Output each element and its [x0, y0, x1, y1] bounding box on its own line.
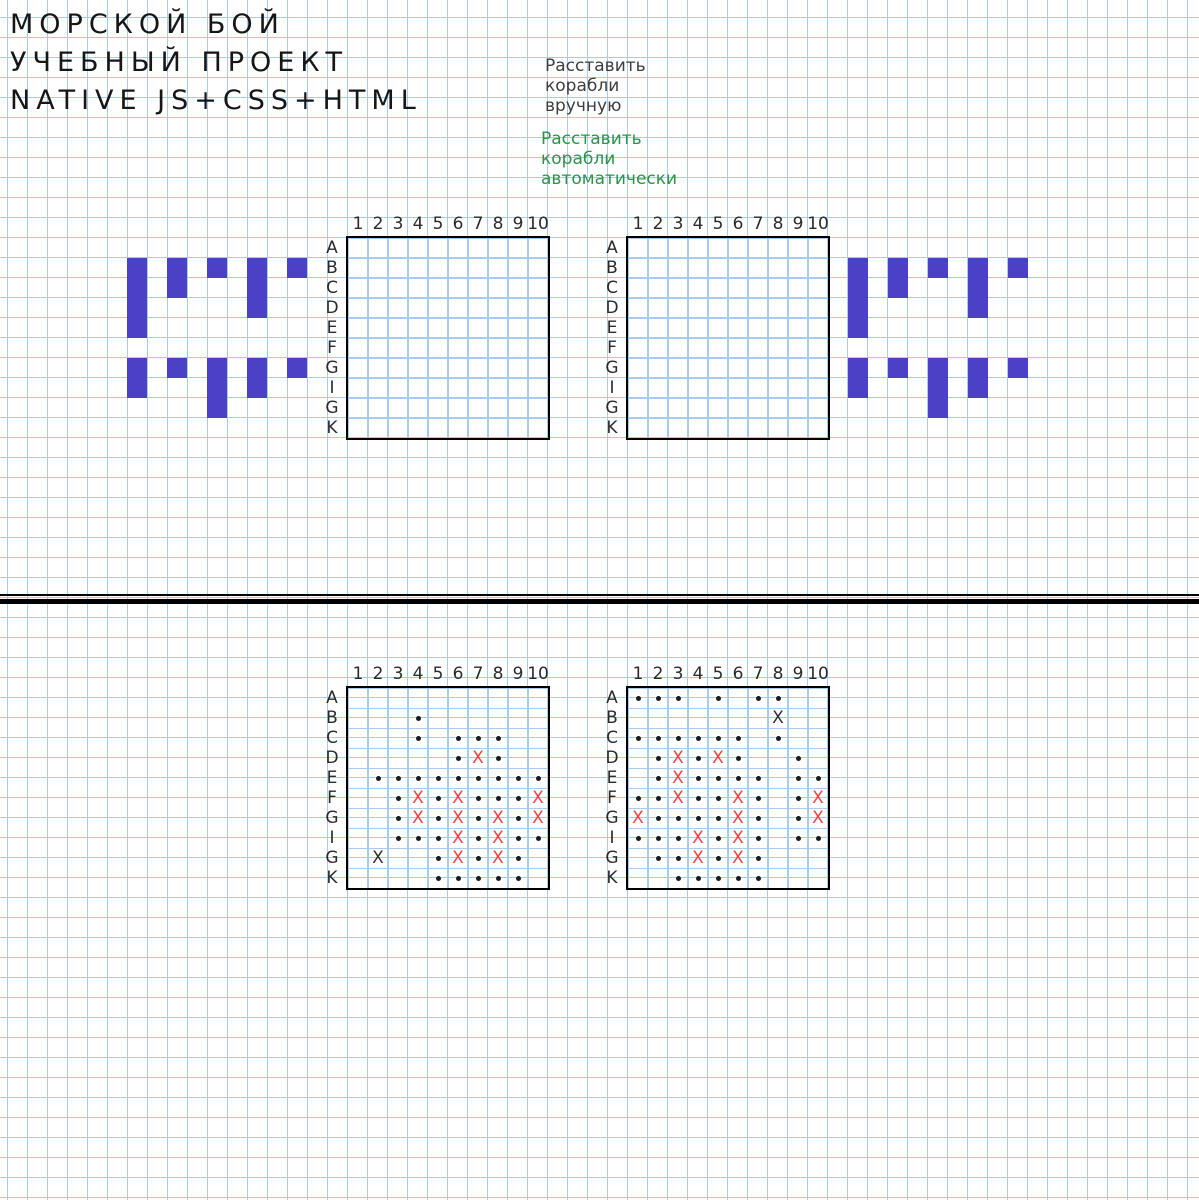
ship-2deck[interactable]: [167, 258, 187, 298]
miss-dot: [388, 808, 408, 828]
row-label: C: [602, 278, 622, 298]
column-label: 5: [708, 664, 728, 684]
miss-dot: [408, 708, 428, 728]
section-divider-bottom-line: [0, 599, 1199, 604]
hit-x-mark: X: [668, 788, 688, 808]
miss-dot: [488, 768, 508, 788]
row-label: G: [602, 808, 622, 828]
ship-2deck[interactable]: [247, 358, 267, 398]
hit-x-mark: X: [688, 848, 708, 868]
hit-x-mark: X: [488, 808, 508, 828]
miss-dot: [488, 748, 508, 768]
miss-dot: [788, 828, 808, 848]
place-ships-automatically-button[interactable]: Расставить корабли автоматически: [541, 129, 681, 189]
miss-dot: [748, 768, 768, 788]
column-label: 3: [668, 664, 688, 684]
hit-x-mark: X: [668, 748, 688, 768]
battleship-page: МОРСКОЙ БОЙ УЧЕБНЫЙ ПРОЕКТ NATIVE JS+CSS…: [0, 0, 1199, 1200]
row-label: B: [322, 708, 342, 728]
hit-x-mark: X: [448, 848, 468, 868]
miss-dot: [388, 788, 408, 808]
miss-dot: [748, 788, 768, 808]
column-label: 1: [348, 664, 368, 684]
miss-dot: [648, 788, 668, 808]
miss-dot: [748, 848, 768, 868]
miss-dot: [628, 728, 648, 748]
miss-dot: [508, 848, 528, 868]
ship-1deck[interactable]: [1008, 358, 1028, 378]
miss-dot: [808, 768, 828, 788]
column-label: 6: [448, 664, 468, 684]
miss-dot: [368, 768, 388, 788]
miss-dot: [748, 808, 768, 828]
column-label: 1: [628, 664, 648, 684]
miss-dot: [528, 828, 548, 848]
miss-dot: [668, 688, 688, 708]
miss-dot: [708, 768, 728, 788]
battle-board-right[interactable]: XXXXXXXXXXXXXX: [626, 686, 830, 890]
miss-dot: [408, 828, 428, 848]
row-label: G: [322, 358, 342, 378]
miss-dot: [668, 848, 688, 868]
hit-x-mark: X: [528, 788, 548, 808]
row-label: F: [602, 338, 622, 358]
column-label: 10: [808, 214, 828, 234]
row-label: B: [602, 258, 622, 278]
column-label: 8: [768, 664, 788, 684]
miss-dot: [788, 788, 808, 808]
hit-x-mark: X: [528, 808, 548, 828]
row-label: I: [602, 828, 622, 848]
row-label: I: [602, 378, 622, 398]
column-label: 4: [408, 664, 428, 684]
miss-dot: [768, 688, 788, 708]
miss-dot: [648, 768, 668, 788]
miss-dot: [788, 768, 808, 788]
column-label: 10: [808, 664, 828, 684]
miss-dot: [688, 728, 708, 748]
miss-dot: [668, 808, 688, 828]
ship-2deck[interactable]: [848, 358, 868, 398]
row-label: I: [322, 828, 342, 848]
miss-dot: [408, 728, 428, 748]
hit-x-mark: X: [728, 808, 748, 828]
ship-4deck[interactable]: [127, 258, 147, 338]
title-line-3: NATIVE JS+CSS+HTML: [10, 82, 422, 120]
ship-3deck[interactable]: [247, 258, 267, 318]
miss-dot: [428, 828, 448, 848]
miss-dot: [628, 688, 648, 708]
miss-dot: [668, 728, 688, 748]
miss-x-mark: X: [768, 708, 788, 728]
miss-dot: [428, 808, 448, 828]
column-label: 7: [468, 214, 488, 234]
column-label: 4: [688, 664, 708, 684]
column-label: 6: [448, 214, 468, 234]
miss-dot: [648, 808, 668, 828]
row-label: E: [602, 768, 622, 788]
column-label: 2: [368, 214, 388, 234]
ship-1deck[interactable]: [167, 358, 187, 378]
miss-dot: [788, 808, 808, 828]
hit-x-mark: X: [488, 848, 508, 868]
column-label: 3: [668, 214, 688, 234]
row-label: F: [322, 788, 342, 808]
miss-dot: [688, 768, 708, 788]
column-label: 1: [628, 214, 648, 234]
miss-dot: [708, 828, 728, 848]
row-label: A: [322, 238, 342, 258]
row-label: I: [322, 378, 342, 398]
miss-dot: [508, 828, 528, 848]
miss-dot: [688, 868, 708, 888]
row-label: D: [322, 748, 342, 768]
miss-dot: [388, 828, 408, 848]
row-label: F: [602, 788, 622, 808]
row-label: A: [602, 688, 622, 708]
miss-dot: [708, 788, 728, 808]
hit-x-mark: X: [408, 788, 428, 808]
column-label: 9: [788, 214, 808, 234]
miss-dot: [708, 728, 728, 748]
setup-board-left[interactable]: [346, 236, 550, 440]
column-label: 6: [728, 214, 748, 234]
hit-x-mark: X: [728, 788, 748, 808]
column-label: 8: [488, 664, 508, 684]
miss-dot: [428, 768, 448, 788]
page-title: МОРСКОЙ БОЙ УЧЕБНЫЙ ПРОЕКТ NATIVE JS+CSS…: [10, 6, 422, 120]
miss-dot: [448, 768, 468, 788]
row-label: K: [322, 418, 342, 438]
ship-3deck[interactable]: [928, 358, 948, 418]
row-label: B: [322, 258, 342, 278]
column-label: 5: [428, 214, 448, 234]
miss-dot: [708, 868, 728, 888]
hit-x-mark: X: [688, 828, 708, 848]
battle-board-left[interactable]: XXXXXXXXXXXXX: [346, 686, 550, 890]
miss-dot: [428, 848, 448, 868]
column-label: 2: [648, 664, 668, 684]
column-label: 2: [648, 214, 668, 234]
miss-dot: [648, 848, 668, 868]
column-label: 7: [468, 664, 488, 684]
column-label: 3: [388, 664, 408, 684]
miss-dot: [728, 768, 748, 788]
column-label: 6: [728, 664, 748, 684]
column-label: 4: [688, 214, 708, 234]
miss-dot: [468, 848, 488, 868]
column-label: 10: [528, 664, 548, 684]
miss-dot: [448, 748, 468, 768]
column-label: 9: [788, 664, 808, 684]
miss-dot: [708, 688, 728, 708]
hit-x-mark: X: [808, 808, 828, 828]
miss-dot: [748, 828, 768, 848]
miss-dot: [688, 808, 708, 828]
place-ships-manually-button[interactable]: Расставить корабли вручную: [545, 56, 665, 116]
column-label: 8: [768, 214, 788, 234]
miss-dot: [508, 808, 528, 828]
column-label: 5: [428, 664, 448, 684]
row-label: G: [322, 808, 342, 828]
ship-1deck[interactable]: [1008, 258, 1028, 278]
ship-1deck[interactable]: [928, 258, 948, 278]
row-label: D: [322, 298, 342, 318]
miss-dot: [708, 808, 728, 828]
miss-dot: [428, 868, 448, 888]
hit-x-mark: X: [448, 808, 468, 828]
miss-dot: [808, 828, 828, 848]
column-label: 8: [488, 214, 508, 234]
hit-x-mark: X: [468, 748, 488, 768]
section-divider-top-line: [0, 594, 1199, 596]
title-line-1: МОРСКОЙ БОЙ: [10, 6, 422, 44]
miss-dot: [468, 828, 488, 848]
hit-x-mark: X: [488, 828, 508, 848]
row-label: K: [602, 868, 622, 888]
column-label: 3: [388, 214, 408, 234]
miss-dot: [748, 868, 768, 888]
column-label: 4: [408, 214, 428, 234]
row-label: K: [602, 418, 622, 438]
miss-dot: [728, 728, 748, 748]
miss-dot: [508, 788, 528, 808]
ship-1deck[interactable]: [207, 258, 227, 278]
ship-2deck[interactable]: [127, 358, 147, 398]
miss-dot: [648, 688, 668, 708]
hit-x-mark: X: [708, 748, 728, 768]
column-label: 5: [708, 214, 728, 234]
row-label: G: [322, 398, 342, 418]
miss-dot: [488, 728, 508, 748]
miss-dot: [428, 788, 448, 808]
miss-dot: [448, 868, 468, 888]
miss-dot: [448, 728, 468, 748]
row-label: E: [322, 318, 342, 338]
miss-dot: [488, 788, 508, 808]
miss-dot: [488, 868, 508, 888]
ship-4deck[interactable]: [848, 258, 868, 338]
miss-dot: [408, 768, 428, 788]
row-label: C: [322, 278, 342, 298]
miss-dot: [768, 728, 788, 748]
miss-dot: [648, 748, 668, 768]
row-label: G: [602, 358, 622, 378]
row-label: K: [322, 868, 342, 888]
hit-x-mark: X: [408, 808, 428, 828]
column-label: 1: [348, 214, 368, 234]
column-label: 7: [748, 664, 768, 684]
column-label: 2: [368, 664, 388, 684]
hit-x-mark: X: [808, 788, 828, 808]
row-label: F: [322, 338, 342, 358]
miss-dot: [508, 768, 528, 788]
ship-3deck[interactable]: [207, 358, 227, 418]
miss-dot: [628, 788, 648, 808]
miss-dot: [748, 688, 768, 708]
title-line-2: УЧЕБНЫЙ ПРОЕКТ: [10, 44, 422, 82]
miss-dot: [788, 748, 808, 768]
miss-dot: [628, 828, 648, 848]
row-label: D: [602, 298, 622, 318]
row-label: C: [322, 728, 342, 748]
miss-dot: [468, 808, 488, 828]
miss-dot: [708, 848, 728, 868]
column-label: 9: [508, 214, 528, 234]
miss-dot: [728, 748, 748, 768]
row-label: E: [602, 318, 622, 338]
hit-x-mark: X: [728, 848, 748, 868]
ship-1deck[interactable]: [888, 358, 908, 378]
miss-dot: [468, 728, 488, 748]
hit-x-mark: X: [448, 788, 468, 808]
miss-dot: [508, 868, 528, 888]
row-label: G: [322, 848, 342, 868]
miss-dot: [468, 788, 488, 808]
ship-1deck[interactable]: [287, 258, 307, 278]
miss-x-mark: X: [368, 848, 388, 868]
ship-3deck[interactable]: [968, 258, 988, 318]
row-label: G: [602, 848, 622, 868]
row-label: A: [602, 238, 622, 258]
row-label: D: [602, 748, 622, 768]
miss-dot: [468, 868, 488, 888]
miss-dot: [648, 828, 668, 848]
row-label: G: [602, 398, 622, 418]
row-label: E: [322, 768, 342, 788]
hit-x-mark: X: [728, 828, 748, 848]
miss-dot: [688, 788, 708, 808]
row-label: B: [602, 708, 622, 728]
row-label: A: [322, 688, 342, 708]
column-label: 7: [748, 214, 768, 234]
miss-dot: [728, 868, 748, 888]
setup-board-right[interactable]: [626, 236, 830, 440]
miss-dot: [648, 728, 668, 748]
column-label: 10: [528, 214, 548, 234]
miss-dot: [388, 768, 408, 788]
miss-dot: [528, 768, 548, 788]
miss-dot: [468, 768, 488, 788]
miss-dot: [668, 828, 688, 848]
miss-dot: [688, 748, 708, 768]
ship-2deck[interactable]: [968, 358, 988, 398]
row-label: C: [602, 728, 622, 748]
column-label: 9: [508, 664, 528, 684]
hit-x-mark: X: [448, 828, 468, 848]
hit-x-mark: X: [628, 808, 648, 828]
hit-x-mark: X: [668, 768, 688, 788]
ship-1deck[interactable]: [287, 358, 307, 378]
miss-dot: [668, 868, 688, 888]
ship-2deck[interactable]: [888, 258, 908, 298]
